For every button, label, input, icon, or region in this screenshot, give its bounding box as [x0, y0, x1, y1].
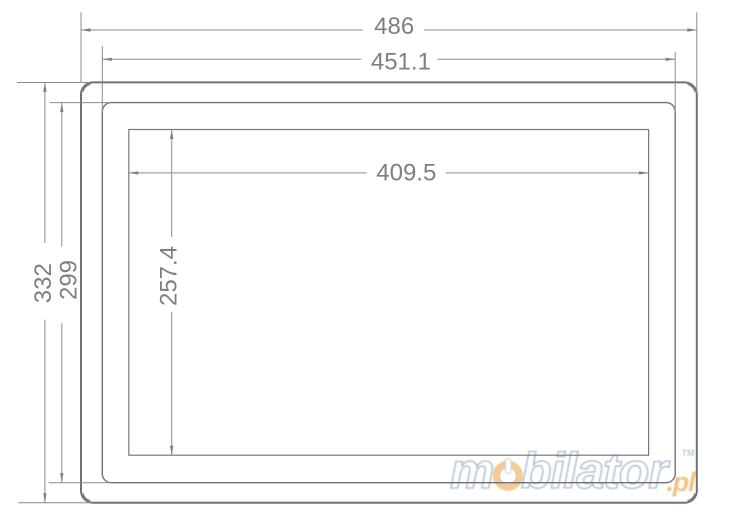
svg-text:299: 299	[56, 260, 83, 300]
svg-text:TM: TM	[682, 448, 695, 458]
svg-text:m: m	[450, 443, 493, 499]
svg-text:bilator: bilator	[521, 443, 670, 499]
svg-text:332: 332	[30, 263, 57, 303]
svg-text:257.4: 257.4	[156, 246, 183, 306]
svg-text:409.5: 409.5	[376, 160, 436, 187]
svg-text:451.1: 451.1	[371, 49, 431, 76]
svg-text:486: 486	[374, 13, 414, 40]
